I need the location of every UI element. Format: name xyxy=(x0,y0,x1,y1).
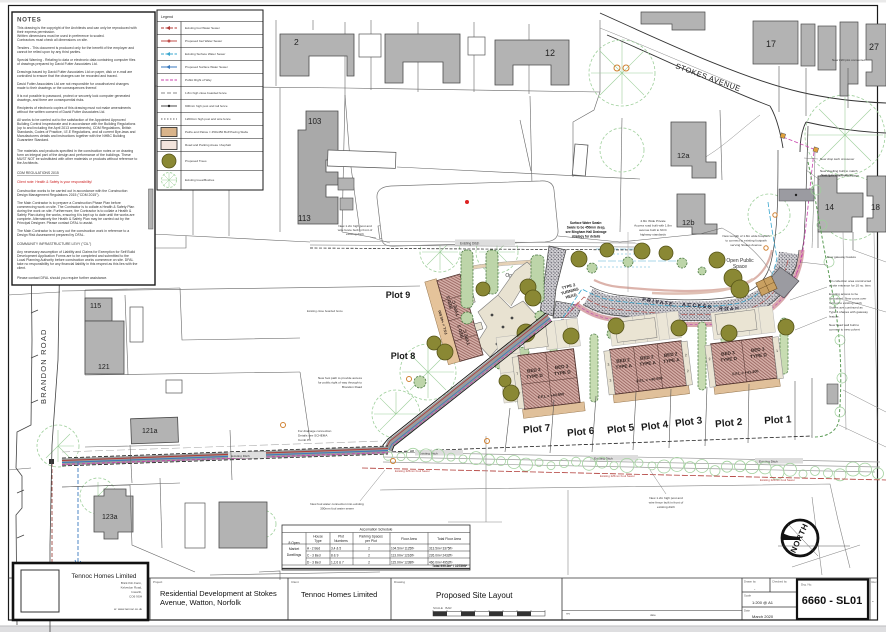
svg-text:New drop kerb crossover: New drop kerb crossover xyxy=(820,157,854,161)
svg-text:Access road built with 1.8m: Access road built with 1.8m xyxy=(634,224,672,228)
svg-text:Comb P1: Comb P1 xyxy=(298,438,311,442)
svg-text:avenue built to NCC: avenue built to NCC xyxy=(639,228,667,232)
svg-text:client.: client. xyxy=(17,266,26,270)
svg-text:Type: Type xyxy=(314,539,321,543)
svg-text:Kelvedon Road,: Kelvedon Road, xyxy=(121,586,143,590)
svg-text:Existing Surface Water Sewer: Existing Surface Water Sewer xyxy=(185,52,225,56)
svg-text:Market: Market xyxy=(289,547,299,551)
svg-text:2: 2 xyxy=(368,547,370,551)
svg-text:Plot 1: Plot 1 xyxy=(764,414,792,426)
svg-text:Proposed foul Water Sewer: Proposed foul Water Sewer xyxy=(185,39,222,43)
svg-text:Scale: Scale xyxy=(744,594,751,598)
svg-text:Legend: Legend xyxy=(161,15,173,19)
svg-text:Plot 8: Plot 8 xyxy=(391,351,416,361)
svg-text:Plot 9: Plot 9 xyxy=(386,290,411,300)
svg-text:8 & 9: 8 & 9 xyxy=(331,554,339,558)
svg-text:Client note: Health & Safety i: Client note: Health & Safety is your res… xyxy=(17,180,92,184)
svg-text:controlled to ensure that the: controlled to ensure that the changes ca… xyxy=(17,74,118,78)
svg-text:115: 115 xyxy=(90,303,101,310)
svg-text:300mm foul water sewer: 300mm foul water sewer xyxy=(320,507,354,511)
svg-text:Guarantee Standard.: Guarantee Standard. xyxy=(17,138,49,142)
svg-text:per Plot: per Plot xyxy=(365,539,377,543)
svg-text:of drawings prepared by David: of drawings prepared by David Futter Ass… xyxy=(17,62,98,66)
svg-text:Proposed Trees: Proposed Trees xyxy=(185,159,207,163)
svg-text:8 Open: 8 Open xyxy=(288,541,299,545)
svg-text:Details see SCHEMA: Details see SCHEMA xyxy=(298,434,328,438)
svg-text:New infill plot consented: New infill plot consented xyxy=(832,58,866,62)
svg-text:CDM REGULATIONS 2015: CDM REGULATIONS 2015 xyxy=(17,171,59,175)
svg-text:Existing 225mm Foul Sewer: Existing 225mm Foul Sewer xyxy=(600,474,635,478)
svg-text:Existing Ditch: Existing Ditch xyxy=(460,242,480,246)
svg-text:Total 999.5m² / 10759ft²: Total 999.5m² / 10759ft² xyxy=(432,564,467,568)
svg-text:Please contact DFAL should you: Please contact DFAL should you require f… xyxy=(17,276,107,280)
svg-text:rev: rev xyxy=(566,612,571,616)
svg-text:D - 3 Bed: D - 3 Bed xyxy=(307,561,321,565)
svg-text:1200mm high post and wire fenc: 1200mm high post and wire fence xyxy=(185,117,231,121)
svg-text:A - 2 Bed: A - 2 Bed xyxy=(307,547,320,551)
svg-text:2: 2 xyxy=(368,561,370,565)
svg-text:14: 14 xyxy=(825,203,834,212)
svg-text:existing ditch: existing ditch xyxy=(346,232,364,236)
svg-text:New foot path to provide acces: New foot path to provide access xyxy=(318,376,362,380)
svg-text:Stokes ave continued as: Stokes ave continued as xyxy=(829,306,863,310)
svg-text:New head wall built to: New head wall built to xyxy=(829,323,859,327)
svg-text:existing in extent of curtilag: existing in extent of curtilage xyxy=(820,174,859,178)
svg-text:see Bingham Hall Drainage: see Bingham Hall Drainage xyxy=(565,230,606,234)
svg-text:12b: 12b xyxy=(682,218,695,227)
svg-text:115.0m²/ 1238ft²: 115.0m²/ 1238ft² xyxy=(391,561,414,565)
svg-text:For drainage connection: For drainage connection xyxy=(298,429,332,433)
svg-text:Existing access to be: Existing access to be xyxy=(829,292,858,296)
svg-text:1,2,6 & 7: 1,2,6 & 7 xyxy=(331,561,344,565)
svg-text:226.0m²/ 2432ft²: 226.0m²/ 2432ft² xyxy=(429,554,452,558)
svg-text:Floor Area: Floor Area xyxy=(401,537,417,541)
svg-text:Existing 225mm Foul Sewer: Existing 225mm Foul Sewer xyxy=(760,478,795,482)
svg-text:C - 3 Bed: C - 3 Bed xyxy=(307,554,321,558)
svg-text:Residential Development at Sto: Residential Development at Stokes xyxy=(160,589,277,598)
svg-text:27: 27 xyxy=(869,42,879,52)
svg-text:serving Stokes Avenue: serving Stokes Avenue xyxy=(730,243,762,247)
svg-text:113: 113 xyxy=(298,214,311,223)
svg-text:March 2020: March 2020 xyxy=(752,614,774,619)
svg-text:SCALE BAR: SCALE BAR xyxy=(433,606,452,610)
svg-text:Proposed Surface Water Sewer: Proposed Surface Water Sewer xyxy=(185,65,228,69)
svg-text:strategy for details: strategy for details xyxy=(572,235,601,239)
svg-text:Brick Kiln Farm,: Brick Kiln Farm, xyxy=(121,581,142,585)
svg-text:connect to new culvert: connect to new culvert xyxy=(829,328,860,332)
svg-text:Public Right of Way: Public Right of Way xyxy=(185,78,212,82)
svg-text:Accomation Schedule: Accomation Schedule xyxy=(360,528,393,532)
svg-text:Existing Ditch: Existing Ditch xyxy=(419,452,438,456)
svg-text:17: 17 xyxy=(766,39,776,49)
svg-text:313.5m²/ 3375ft²: 313.5m²/ 3375ft² xyxy=(429,547,452,551)
svg-text:New dwelling built to match: New dwelling built to match xyxy=(820,169,858,173)
svg-text:COMMUNITY INFRASTRUCTURE LEVY: COMMUNITY INFRASTRUCTURE LEVY ("CIL") xyxy=(17,242,91,246)
svg-text:feature.: feature. xyxy=(829,315,840,319)
svg-text:highway standards: highway standards xyxy=(640,233,666,237)
svg-text:18: 18 xyxy=(871,203,880,212)
svg-text:BRANDON ROAD: BRANDON ROAD xyxy=(39,328,48,404)
svg-text:w: www.tennoc.co.uk: w: www.tennoc.co.uk xyxy=(114,607,143,611)
svg-text:Existing foul Water Sewer: Existing foul Water Sewer xyxy=(185,26,220,30)
svg-text:900mm high post and rail fence: 900mm high post and rail fence xyxy=(185,104,228,108)
svg-text:Proposed Site Layout: Proposed Site Layout xyxy=(436,591,513,600)
svg-text:Dwellings: Dwellings xyxy=(287,553,302,557)
svg-text:New 1.2m high post and: New 1.2m high post and xyxy=(649,496,683,500)
svg-text:Existing 225mm Foul Sewer: Existing 225mm Foul Sewer xyxy=(395,469,430,473)
svg-text:to connect to existing footpat: to connect to existing footpath xyxy=(725,239,766,243)
svg-text:Paths and Patios = 450x450 Buf: Paths and Patios = 450x450 Buff Paving S… xyxy=(185,130,249,134)
svg-text:Date: Date xyxy=(744,609,750,613)
svg-text:Project: Project xyxy=(153,580,163,584)
svg-text:123a: 123a xyxy=(102,514,118,521)
svg-text:Swale to be 450mm deep,: Swale to be 450mm deep, xyxy=(567,226,606,230)
svg-text:Contractors must check all dim: Contractors must check all dimensions on… xyxy=(17,38,88,42)
svg-text:House: House xyxy=(313,535,323,539)
svg-text:NOTES: NOTES xyxy=(17,17,41,24)
svg-text:Type 4 shapes with gateway: Type 4 shapes with gateway xyxy=(829,310,868,314)
svg-text:Road and Parking Areas =Asphal: Road and Parking Areas =Asphalt xyxy=(185,143,231,147)
svg-text:2: 2 xyxy=(294,37,299,47)
svg-text:121a: 121a xyxy=(142,428,158,435)
svg-text:Surface Water Swale:: Surface Water Swale: xyxy=(570,221,602,225)
svg-text:Bin collection area construct: Bin collection area constructed xyxy=(829,279,871,283)
svg-text:New foul water connection into: New foul water connection into existing xyxy=(310,502,364,506)
svg-text:cannot be relied upon by any t: cannot be relied upon by any third parti… xyxy=(17,50,81,54)
svg-text:Design Risk Assessment prepare: Design Risk Assessment prepared by DFAL. xyxy=(17,233,85,237)
svg-text:113.0m²/ 1216ft²: 113.0m²/ 1216ft² xyxy=(391,554,414,558)
svg-text:Brandon Road: Brandon Road xyxy=(342,385,362,389)
svg-text:Drawing: Drawing xyxy=(394,580,405,584)
svg-text:103: 103 xyxy=(308,117,322,126)
svg-text:2: 2 xyxy=(368,554,370,558)
svg-text:wire fence built in front of: wire fence built in front of xyxy=(649,501,684,505)
svg-text:drawings, and there are conseq: drawings, and there are consequential ri… xyxy=(17,98,84,102)
svg-text:3,4 & 5: 3,4 & 5 xyxy=(331,547,341,551)
svg-text:Parking Spaces: Parking Spaces xyxy=(359,535,383,539)
svg-text:Total Floor Area: Total Floor Area xyxy=(437,537,461,541)
svg-text:Plot: Plot xyxy=(338,535,344,539)
svg-text:the Architects.: the Architects. xyxy=(17,161,39,165)
svg-text:formalised. New cross over: formalised. New cross over xyxy=(829,297,866,301)
svg-text:121: 121 xyxy=(98,364,110,371)
svg-text:Existing Ditch: Existing Ditch xyxy=(231,454,250,458)
svg-text:CO6 9SH: CO6 9SH xyxy=(129,595,142,599)
svg-text:for public right of way throug: for public right of way through to xyxy=(318,381,362,385)
svg-text:Numbers: Numbers xyxy=(334,539,348,543)
svg-text:at site entrance for 10 no. bi: at site entrance for 10 no. bins xyxy=(829,284,871,288)
svg-text:6660 - SL01: 6660 - SL01 xyxy=(802,595,863,607)
svg-text:12: 12 xyxy=(545,48,555,58)
svg-text:Inworth,: Inworth, xyxy=(131,590,142,594)
svg-text:Tennoc Homes Limited: Tennoc Homes Limited xyxy=(301,590,377,599)
svg-text:existing ditch: existing ditch xyxy=(657,505,675,509)
svg-text:Principal Designer. Please con: Principal Designer. Please contact DFAL … xyxy=(17,221,93,225)
svg-text:Rev: Rev xyxy=(872,580,878,584)
svg-text:made to their drawings or the: made to their drawings or the consequenc… xyxy=(17,86,97,90)
svg-text:Tennoc Homes Limited: Tennoc Homes Limited xyxy=(71,573,136,580)
svg-text:1:200 @ A1: 1:200 @ A1 xyxy=(752,600,774,605)
svg-text:Existing trees/Bushes: Existing trees/Bushes xyxy=(185,178,215,182)
svg-text:12a: 12a xyxy=(677,151,690,160)
svg-text:New Length of 1.8m wide footpa: New Length of 1.8m wide footpath xyxy=(723,234,770,238)
svg-text:formed to existing south: formed to existing south xyxy=(829,301,862,305)
svg-text:without the written consent of: without the written consent of David Fut… xyxy=(17,110,105,114)
svg-text:Existing close boarded fence: Existing close boarded fence xyxy=(307,309,343,313)
svg-text:Checked by: Checked by xyxy=(772,580,787,584)
svg-text:Avenue, Watton, Norfolk: Avenue, Watton, Norfolk xyxy=(160,598,241,607)
svg-text:1.8m high close boarded fence: 1.8m high close boarded fence xyxy=(185,91,227,95)
svg-text:New gateway feature: New gateway feature xyxy=(827,255,856,259)
svg-text:Design Management Regulations: Design Management Regulations 2015 ("CDM… xyxy=(17,193,100,197)
svg-text:104.5m²/ 1125ft²: 104.5m²/ 1125ft² xyxy=(391,547,414,551)
svg-text:Client: Client xyxy=(291,580,299,584)
svg-text:4.8m Wide Private: 4.8m Wide Private xyxy=(640,219,666,223)
svg-text:take no responsibility for any: take no responsibility for any financial… xyxy=(17,262,137,266)
svg-text:Drg. No.: Drg. No. xyxy=(801,583,812,587)
svg-text:Drawn by: Drawn by xyxy=(744,580,756,584)
svg-text:date: date xyxy=(650,613,656,617)
